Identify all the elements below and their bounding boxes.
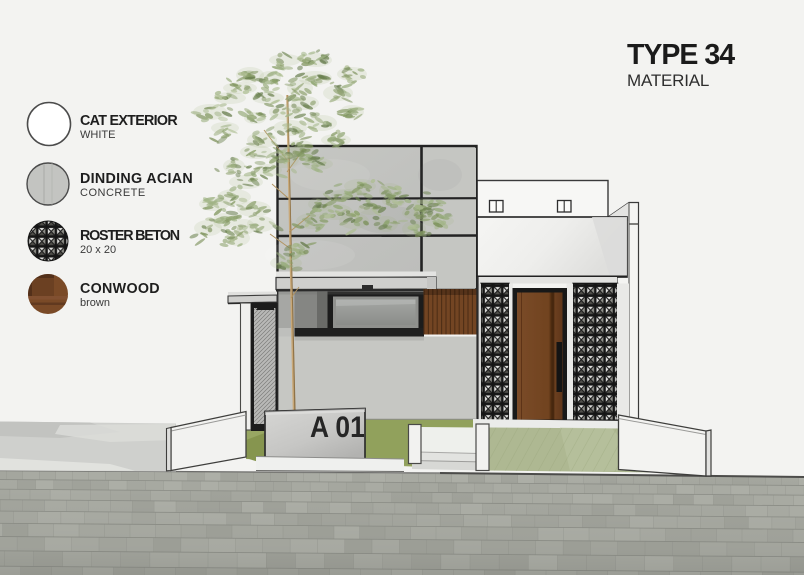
svg-text:WHITE: WHITE	[80, 129, 115, 141]
svg-text:ROSTER BETON: ROSTER BETON	[80, 228, 180, 244]
svg-text:CAT EXTERIOR: CAT EXTERIOR	[80, 113, 178, 129]
svg-text:DINDING ACIAN: DINDING ACIAN	[80, 171, 193, 187]
svg-text:CONCRETE: CONCRETE	[80, 187, 146, 199]
svg-text:CONWOOD: CONWOOD	[80, 281, 160, 297]
svg-text:brown: brown	[80, 297, 110, 309]
svg-text:TYPE 34: TYPE 34	[627, 39, 735, 71]
svg-text:A 01: A 01	[310, 409, 365, 443]
svg-text:MATERIAL: MATERIAL	[627, 71, 709, 90]
svg-text:20 x 20: 20 x 20	[80, 244, 116, 256]
